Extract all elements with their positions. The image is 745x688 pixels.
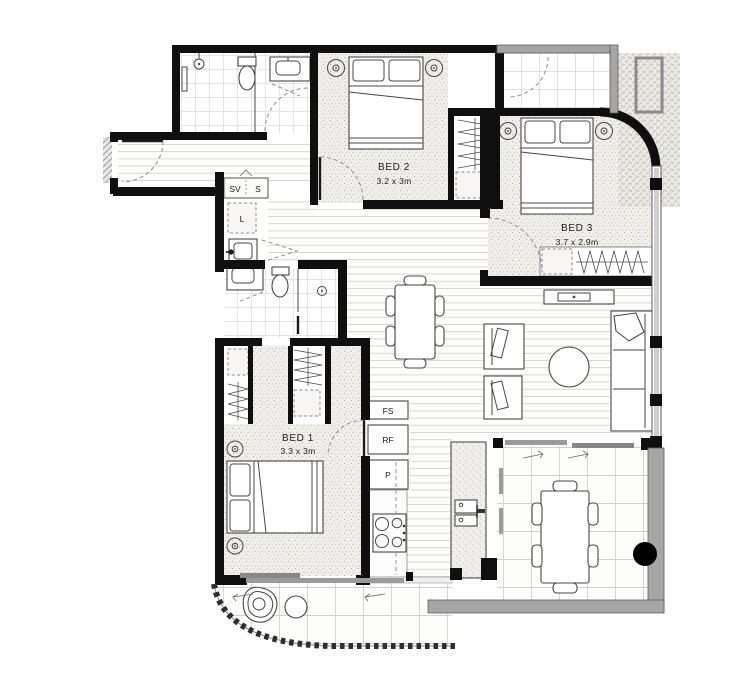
- coffee-table-icon: [549, 347, 589, 387]
- door-track: [499, 508, 503, 534]
- sv-label: SV: [229, 184, 241, 194]
- terrace-tiles: [503, 53, 610, 108]
- door-track: [499, 468, 503, 494]
- terrace-side-wall: [610, 45, 618, 113]
- sliding-door-leaf: [240, 573, 300, 578]
- toilet-icon: [238, 57, 256, 90]
- tv-unit-icon: [544, 290, 614, 304]
- sliding-door-leaf: [310, 578, 404, 583]
- bed3-dims: 3.7 x 2.9m: [556, 237, 599, 247]
- armchair-icon: [484, 324, 524, 369]
- bed2-dims: 3.2 x 3m: [377, 176, 412, 186]
- s-label: S: [255, 184, 261, 194]
- rf-label: RF: [382, 435, 393, 445]
- balcony-bottom-wall: [428, 600, 664, 613]
- cooktop-icon: [373, 514, 406, 552]
- window-band: [650, 166, 662, 450]
- stool-icon: [285, 596, 307, 618]
- bed3-wardrobe: [540, 247, 652, 276]
- column: [633, 542, 657, 566]
- toilet2-icon: [272, 267, 289, 297]
- linen-label: L: [240, 214, 245, 224]
- corridor-floor: [268, 196, 318, 262]
- terrace-top-wall: [497, 45, 610, 53]
- sliding-door-leaf: [572, 443, 634, 448]
- bed3-bed-icon: [521, 118, 593, 214]
- bed3-label: BED 3: [561, 223, 593, 234]
- fs-label: FS: [383, 406, 394, 416]
- p-label: P: [385, 470, 391, 480]
- kitchen-walkway-floor: [407, 438, 452, 580]
- bed2-bed-icon: [349, 57, 423, 149]
- sofa-icon: [611, 311, 653, 431]
- dining-table-icon: [386, 276, 444, 368]
- bed1-bed-icon: [227, 461, 323, 533]
- outdoor-table-icon: [532, 481, 598, 593]
- hall-floor: [118, 140, 310, 187]
- plant-pot-icon: [243, 587, 277, 622]
- sliding-door-leaf: [505, 440, 567, 445]
- bed2-label: BED 2: [378, 162, 410, 173]
- planter-box: [636, 58, 662, 112]
- bed1-dims: 3.3 x 3m: [281, 446, 316, 456]
- armchair-icon: [484, 376, 522, 419]
- floor-plan: BED 1 3.3 x 3m BED 2 3.2 x 3m BED 3 3.7 …: [0, 0, 745, 688]
- balcony-right-wall: [648, 448, 664, 612]
- bed1-label: BED 1: [282, 433, 314, 444]
- entry-exterior-hatch: [103, 137, 112, 183]
